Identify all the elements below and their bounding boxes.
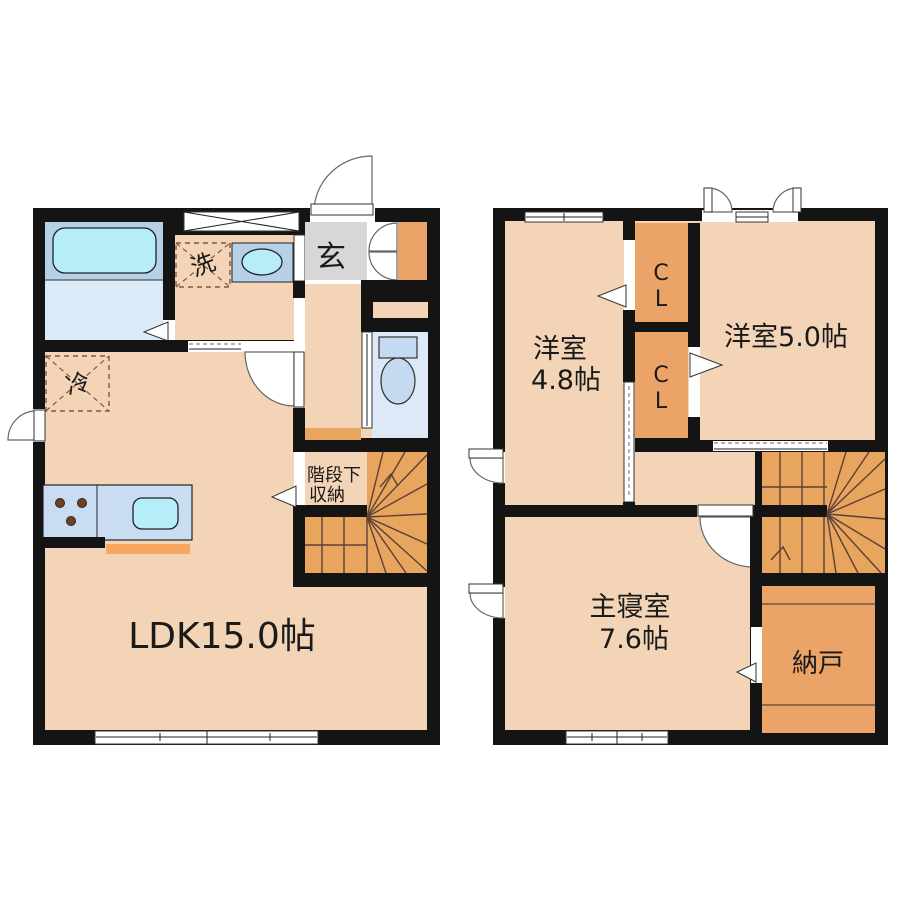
- label-entrance: 玄: [316, 240, 346, 275]
- bathroom: [33, 208, 175, 352]
- bathtub-icon: [53, 228, 156, 273]
- shoe-closet: [398, 222, 427, 280]
- svg-text:L: L: [655, 287, 668, 312]
- toilet-icon: [379, 337, 417, 358]
- master-bedroom-window: [566, 731, 668, 744]
- staircase-2f: [750, 452, 885, 586]
- ldk-side-door-icon: [8, 411, 36, 440]
- floor2-plan: 洋室 4.8帖 洋室5.0帖 C L C L 主寝室 7.6帖 納戸: [469, 188, 888, 745]
- master-casement-icon: [470, 593, 503, 618]
- svg-text:7.6帖: 7.6帖: [599, 624, 669, 655]
- label-closet-upper: C: [653, 261, 668, 286]
- staircase-1f: [296, 440, 440, 587]
- label-closet-lower: C: [653, 363, 668, 388]
- floor1-plan: LDK15.0帖 玄 洗 冷 階段下 収納: [8, 156, 440, 745]
- washroom-sliding-door: [188, 341, 242, 352]
- kitchen-sink-icon: [133, 498, 178, 529]
- hall-casement-icon: [470, 458, 503, 483]
- label-under-stair-storage: 階段下: [307, 465, 361, 486]
- label-room50: 洋室5.0帖: [724, 322, 848, 353]
- svg-text:収納: 収納: [309, 485, 345, 506]
- label-room48: 洋室: [533, 334, 587, 365]
- stove-burner-icon: [56, 499, 65, 508]
- svg-text:4.8帖: 4.8帖: [531, 365, 601, 396]
- label-ldk: LDK15.0帖: [128, 616, 316, 657]
- label-storage-room: 納戸: [792, 649, 844, 679]
- label-master-bedroom: 主寝室: [590, 592, 671, 623]
- svg-text:L: L: [655, 389, 668, 414]
- floor-plan-image: LDK15.0帖 玄 洗 冷 階段下 収納: [0, 0, 900, 900]
